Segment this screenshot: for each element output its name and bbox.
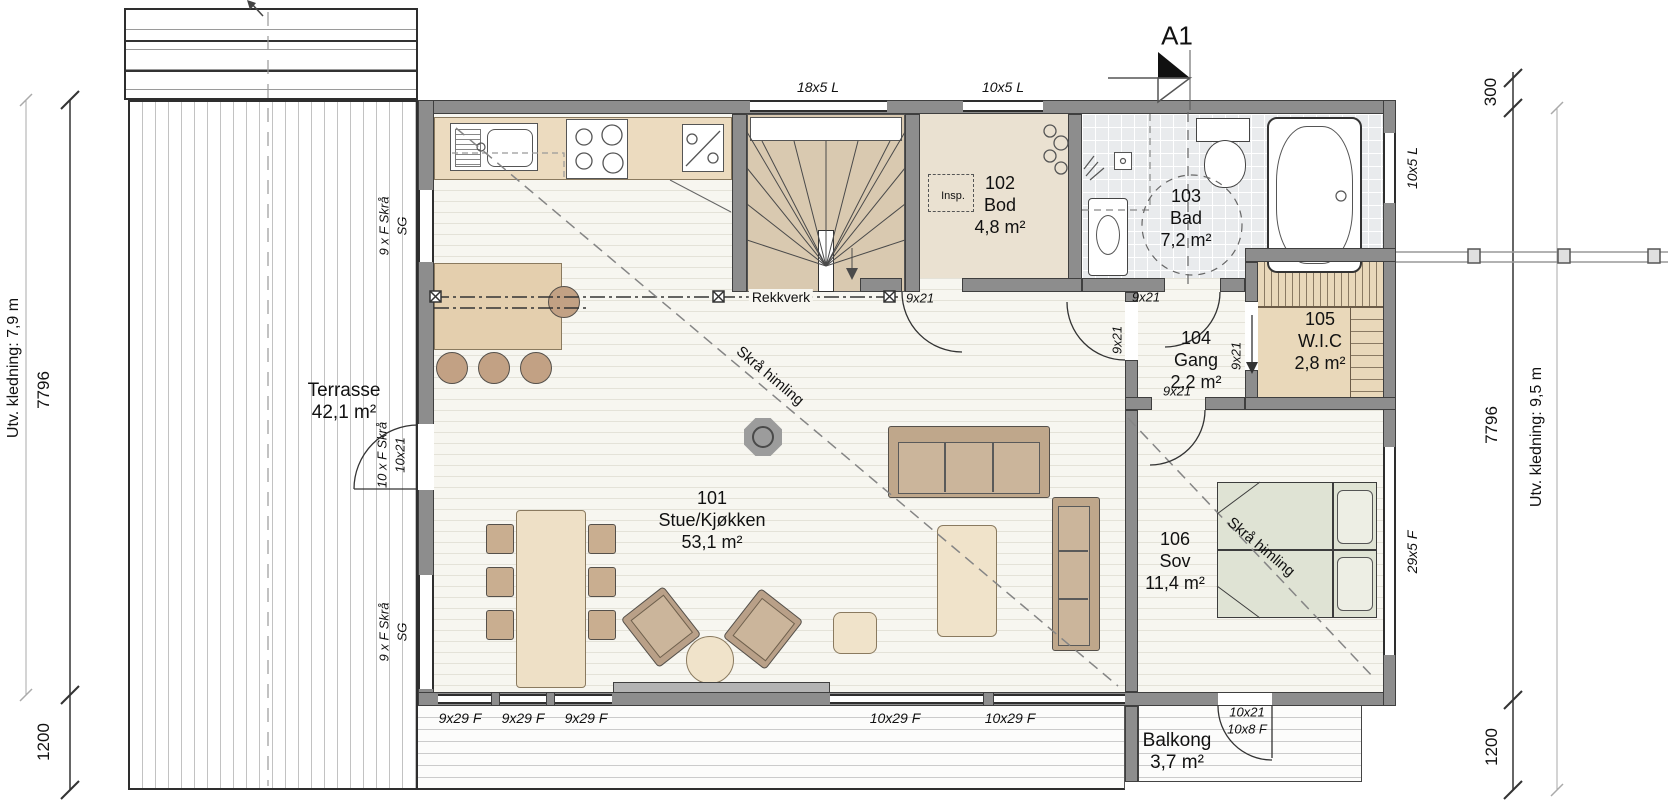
sofa-seam xyxy=(1058,550,1088,552)
room-name: Terrasse xyxy=(308,380,381,402)
room-label-gang: 104 Gang 2,2 m² xyxy=(1170,327,1221,393)
shower-drain xyxy=(1114,152,1132,170)
vanity-basin xyxy=(1096,215,1120,255)
window-sov-right xyxy=(1383,447,1396,655)
wall-gang-bottom xyxy=(1125,397,1152,410)
room-number: 104 xyxy=(1170,327,1221,349)
window-label-bottom: 9x29 F xyxy=(439,710,482,726)
toilet-bowl xyxy=(1204,140,1246,188)
room-name: Stue/Kjøkken xyxy=(658,509,765,531)
window-mullion xyxy=(983,692,994,706)
room-label-terrasse: Terrasse 42,1 m² xyxy=(308,380,381,424)
wall-sov-left xyxy=(1125,410,1138,692)
window-label-left-lower: 9 x F Skrå xyxy=(377,602,392,661)
window-label-sov-right: 29x5 F xyxy=(1404,531,1420,574)
floor-plan-canvas: Utv. kledning: 7,9 m 7796 1200 300 7796 … xyxy=(0,0,1670,800)
dining-chair xyxy=(486,567,514,597)
bed-pillow-line xyxy=(1332,483,1334,617)
door-label-gang: 9x21 xyxy=(1110,326,1125,354)
door-label-wic: 9x21 xyxy=(1229,342,1244,370)
room-name: Sov xyxy=(1145,550,1205,572)
door-terrace-opening xyxy=(418,424,434,490)
terrace-steps xyxy=(124,8,418,100)
room-name: Bod xyxy=(974,194,1025,216)
pillow xyxy=(1337,490,1373,544)
window-mullion xyxy=(491,692,500,706)
railing-extension xyxy=(1396,249,1668,263)
room-name: W.I.C xyxy=(1294,330,1345,352)
dim-left-bottom: 1200 xyxy=(34,723,54,761)
window-label-bottom: 9x29 F xyxy=(565,710,608,726)
wall-wic-bottom xyxy=(1245,397,1396,410)
bar-stool xyxy=(478,352,510,384)
room-area: 3,7 m² xyxy=(1143,752,1212,774)
dining-table xyxy=(516,510,586,688)
door-label-terrace: 10 x F Skrå xyxy=(375,422,390,488)
stove-ring xyxy=(752,426,774,448)
dining-chair xyxy=(588,567,616,597)
window-label-bad-right: 10x5 L xyxy=(1404,147,1420,189)
kitchen-stove xyxy=(566,119,628,179)
bathtub-inner xyxy=(1276,126,1353,264)
dim-left-height: 7796 xyxy=(34,371,54,409)
door-gang-opening xyxy=(1125,302,1138,360)
bathroom-vanity xyxy=(1088,198,1128,276)
wall-bod-right xyxy=(1068,114,1082,292)
window-label-bottom: 10x29 F xyxy=(985,710,1036,726)
room-area: 11,4 m² xyxy=(1145,572,1205,594)
bar-stool xyxy=(520,352,552,384)
wall-under-bad xyxy=(1220,278,1245,292)
section-label-a1: A1 xyxy=(1161,21,1193,52)
room-area: 4,8 m² xyxy=(974,216,1025,238)
door-wic-opening xyxy=(1245,302,1258,370)
door-label-balcony-size: 10x8 F xyxy=(1227,722,1267,737)
room-label-stue: 101 Stue/Kjøkken 53,1 m² xyxy=(658,487,765,553)
pouf xyxy=(833,612,877,654)
room-label-bad: 103 Bad 7,2 m² xyxy=(1160,185,1211,251)
room-label-wic: 105 W.I.C 2,8 m² xyxy=(1294,308,1345,374)
dim-right-bottom: 1200 xyxy=(1482,728,1502,766)
dimension-left xyxy=(20,91,79,799)
window-label-bottom: 9x29 F xyxy=(502,710,545,726)
window-left-lower xyxy=(418,575,434,689)
sink-drainer xyxy=(455,129,481,167)
dining-chair xyxy=(486,610,514,640)
kitchen-island xyxy=(434,263,562,350)
room-area: 53,1 m² xyxy=(658,531,765,553)
stair-landing xyxy=(750,117,902,141)
room-number: 105 xyxy=(1294,308,1345,330)
window-label-left-upper-sg: SG xyxy=(395,217,410,236)
room-label-bod: 102 Bod 4,8 m² xyxy=(974,172,1025,238)
wall-balcony-left xyxy=(1125,706,1138,782)
room-number: 103 xyxy=(1160,185,1211,207)
window-label-bottom: 10x29 F xyxy=(870,710,921,726)
bar-stool xyxy=(436,352,468,384)
bed-split xyxy=(1218,549,1376,551)
dining-chair xyxy=(588,610,616,640)
room-area: 2,8 m² xyxy=(1294,352,1345,374)
room-area: 42,1 m² xyxy=(308,402,381,424)
window-label-bod: 10x5 L xyxy=(982,79,1024,95)
side-table xyxy=(686,636,734,684)
kitchen-appliance xyxy=(682,124,724,172)
kitchen-sink-unit xyxy=(450,123,538,171)
dining-chair xyxy=(486,524,514,554)
sofa-seam xyxy=(1058,598,1088,600)
dim-right-height: 7796 xyxy=(1482,406,1502,444)
dim-left-cladding: Utv. kledning: 7,9 m xyxy=(5,298,23,438)
door-balcony-opening xyxy=(1218,693,1272,705)
room-name: Bad xyxy=(1160,207,1211,229)
door-label-bod: 9x21 xyxy=(906,291,934,306)
sofa-seam xyxy=(992,442,994,492)
sofa-seat xyxy=(898,442,1040,494)
sofa xyxy=(888,426,1050,498)
coffee-table xyxy=(937,525,997,637)
door-label-terrace-size: 10x21 xyxy=(393,437,408,472)
window-mullion xyxy=(546,692,555,706)
inspection-hatch-label: Insp. xyxy=(941,190,965,202)
window-bottom-stue xyxy=(438,694,612,704)
window-bod xyxy=(963,100,1043,112)
step-edge xyxy=(126,40,416,42)
dim-right-cladding: Utv. kledning: 9,5 m xyxy=(1528,367,1546,507)
wic-shelves xyxy=(1350,308,1383,397)
door-label-bad: 9x21 xyxy=(1132,290,1160,305)
window-label-stair: 18x5 L xyxy=(797,79,839,95)
room-number: 101 xyxy=(658,487,765,509)
dining-chair xyxy=(588,524,616,554)
window-left-upper xyxy=(418,190,434,262)
step-edge xyxy=(126,70,416,72)
wall-stairs-left xyxy=(732,114,747,292)
room-area: 2,2 m² xyxy=(1170,371,1221,393)
wall-top xyxy=(418,100,1396,114)
sofa-seat xyxy=(1058,506,1090,646)
room-number: 102 xyxy=(974,172,1025,194)
sink-basin xyxy=(487,129,533,167)
room-number: 106 xyxy=(1145,528,1205,550)
window-bad-right xyxy=(1383,133,1396,203)
room-name: Balkong xyxy=(1143,730,1212,752)
wall-wic-left xyxy=(1245,262,1258,302)
bed xyxy=(1217,482,1377,618)
stair-divider xyxy=(818,230,834,292)
room-area: 7,2 m² xyxy=(1160,229,1211,251)
sofa-seam xyxy=(944,442,946,492)
window-label-left-upper: 9 x F Skrå xyxy=(377,196,392,255)
room-label-balkong: Balkong 3,7 m² xyxy=(1143,730,1212,774)
wall-under-bod xyxy=(962,278,1082,292)
wall-bad-wic xyxy=(1245,248,1396,262)
wall-gang-bottom xyxy=(1205,397,1245,410)
room-label-sov: 106 Sov 11,4 m² xyxy=(1145,528,1205,594)
door-label-balcony: 10x21 xyxy=(1229,705,1264,720)
wood-stove xyxy=(744,418,782,456)
room-name: Gang xyxy=(1170,349,1221,371)
window-label-left-lower-sg: SG xyxy=(395,623,410,642)
dim-right-top: 300 xyxy=(1481,78,1501,106)
wall-under-bod xyxy=(860,278,902,292)
window-bottom-east xyxy=(830,694,1125,704)
wall-stairs-right xyxy=(905,114,920,292)
rekkverk-label: Rekkverk xyxy=(749,289,813,305)
pillow xyxy=(1337,557,1373,611)
toilet-tank xyxy=(1196,118,1250,142)
bar-stool xyxy=(548,286,580,318)
sofa xyxy=(1052,497,1100,651)
window-stair xyxy=(750,100,887,112)
